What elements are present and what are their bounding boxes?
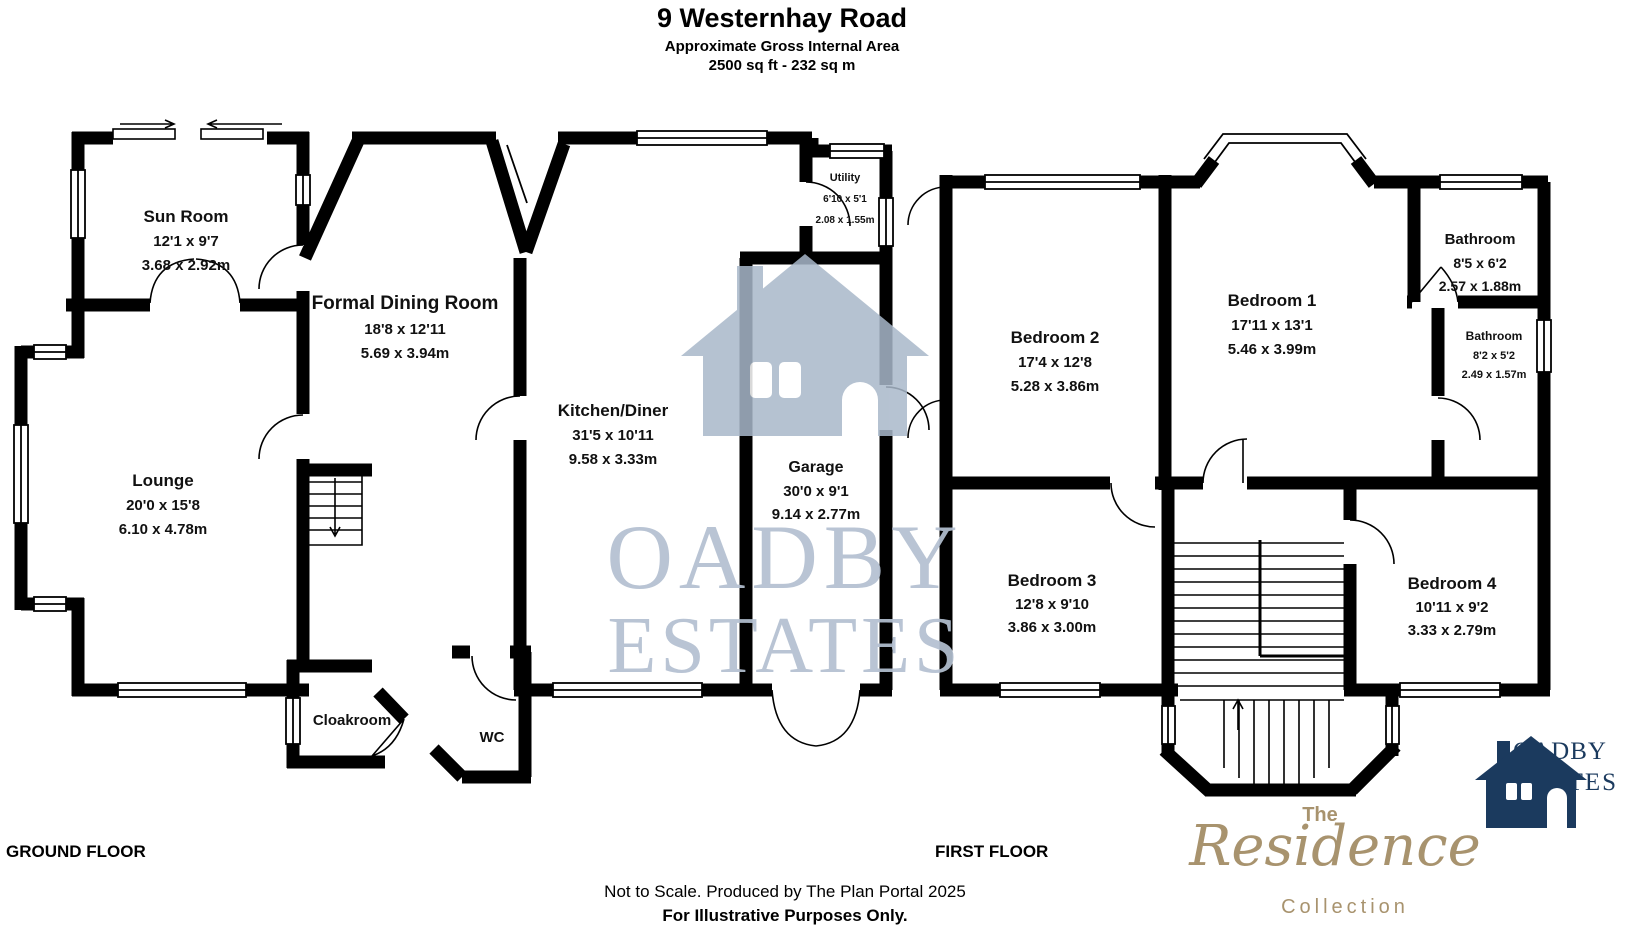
floorplan-page: 9 Westernhay Road Approximate Gross Inte… [0, 0, 1636, 937]
room-name: WC [480, 729, 505, 746]
ground-stairs [308, 470, 362, 545]
room-name: Bathroom [1466, 329, 1523, 343]
oadby-estates-logo: OADBY ESTATES [1475, 736, 1636, 797]
room-name: Bedroom 2 [1011, 328, 1100, 347]
room-name: Bedroom 4 [1408, 574, 1497, 593]
room-metric: 5.46 x 3.99m [1228, 341, 1316, 358]
room-name: Lounge [132, 471, 193, 490]
room-imperial: 17'4 x 12'8 [1018, 354, 1092, 371]
room-name: Bedroom 1 [1228, 291, 1317, 310]
room-imperial: 12'8 x 9'10 [1015, 596, 1089, 613]
room-label-sun-room: Sun Room 12'1 x 9'7 3.68 x 2.92m [142, 207, 230, 274]
room-imperial: 20'0 x 15'8 [126, 497, 200, 514]
first-floor-label: FIRST FLOOR [935, 842, 1048, 862]
room-label-bathroom-1: Bathroom 8'5 x 6'2 2.57 x 1.88m [1439, 231, 1522, 294]
watermark-text-line2: ESTATES [608, 602, 963, 690]
room-metric: 6.10 x 4.78m [119, 521, 207, 538]
residence-logo-name: Residence [1155, 816, 1515, 878]
room-metric: 2.08 x 1.55m [816, 215, 875, 226]
room-metric: 2.49 x 1.57m [1462, 369, 1527, 381]
room-label-garage: Garage 30'0 x 9'1 9.14 x 2.77m [772, 459, 860, 523]
room-metric: 3.86 x 3.00m [1008, 619, 1096, 636]
room-metric: 2.57 x 1.88m [1439, 278, 1522, 294]
room-metric: 9.14 x 2.77m [772, 506, 860, 523]
room-name: Formal Dining Room [312, 293, 499, 314]
room-label-cloakroom: Cloakroom [313, 712, 391, 729]
sliding-door-icon [113, 120, 282, 139]
room-imperial: 6'10 x 5'1 [823, 194, 867, 205]
room-label-bedroom-1: Bedroom 1 17'11 x 13'1 5.46 x 3.99m [1228, 291, 1317, 358]
room-metric: 9.58 x 3.33m [569, 451, 657, 468]
room-label-bedroom-2: Bedroom 2 17'4 x 12'8 5.28 x 3.86m [1011, 328, 1100, 395]
room-metric: 3.68 x 2.92m [142, 257, 230, 274]
room-imperial: 8'5 x 6'2 [1453, 255, 1507, 271]
room-name: Utility [830, 172, 861, 184]
room-imperial: 30'0 x 9'1 [783, 483, 849, 500]
room-label-bathroom-2: Bathroom 8'2 x 5'2 2.49 x 1.57m [1462, 329, 1527, 381]
room-name: Bedroom 3 [1008, 571, 1097, 590]
room-imperial: 17'11 x 13'1 [1231, 317, 1312, 334]
floorplan-drawing: OADBY ESTATES Sun Room 12'1 x 9'7 3.68 x… [0, 0, 1636, 937]
room-metric: 3.33 x 2.79m [1408, 622, 1496, 639]
watermark: OADBY ESTATES [606, 254, 963, 690]
oadby-house-icon [1475, 736, 1587, 830]
room-metric: 5.69 x 3.94m [361, 345, 449, 362]
room-imperial: 12'1 x 9'7 [153, 233, 219, 250]
room-name: Garage [788, 459, 843, 476]
room-imperial: 10'11 x 9'2 [1415, 599, 1488, 616]
room-label-formal-dining-room: Formal Dining Room 18'8 x 12'11 5.69 x 3… [312, 293, 499, 362]
residence-logo-collection: Collection [1220, 896, 1470, 919]
room-name: Bathroom [1445, 231, 1516, 248]
room-metric: 5.28 x 3.86m [1011, 378, 1099, 395]
room-label-wc: WC [480, 729, 505, 746]
room-name: Kitchen/Diner [558, 401, 669, 420]
room-imperial: 31'5 x 10'11 [572, 427, 653, 444]
ground-floor-label: GROUND FLOOR [6, 842, 146, 862]
room-name: Cloakroom [313, 712, 391, 729]
room-imperial: 18'8 x 12'11 [364, 321, 445, 338]
room-name: Sun Room [144, 207, 229, 226]
room-label-utility: Utility 6'10 x 5'1 2.08 x 1.55m [816, 172, 875, 226]
first-floor-stairs [1174, 540, 1344, 786]
room-label-lounge: Lounge 20'0 x 15'8 6.10 x 4.78m [119, 471, 207, 538]
room-label-kitchen-diner: Kitchen/Diner 31'5 x 10'11 9.58 x 3.33m [558, 401, 669, 468]
room-label-bedroom-3: Bedroom 3 12'8 x 9'10 3.86 x 3.00m [1008, 571, 1097, 636]
room-imperial: 8'2 x 5'2 [1473, 350, 1515, 362]
room-label-bedroom-4: Bedroom 4 10'11 x 9'2 3.33 x 2.79m [1408, 574, 1497, 639]
